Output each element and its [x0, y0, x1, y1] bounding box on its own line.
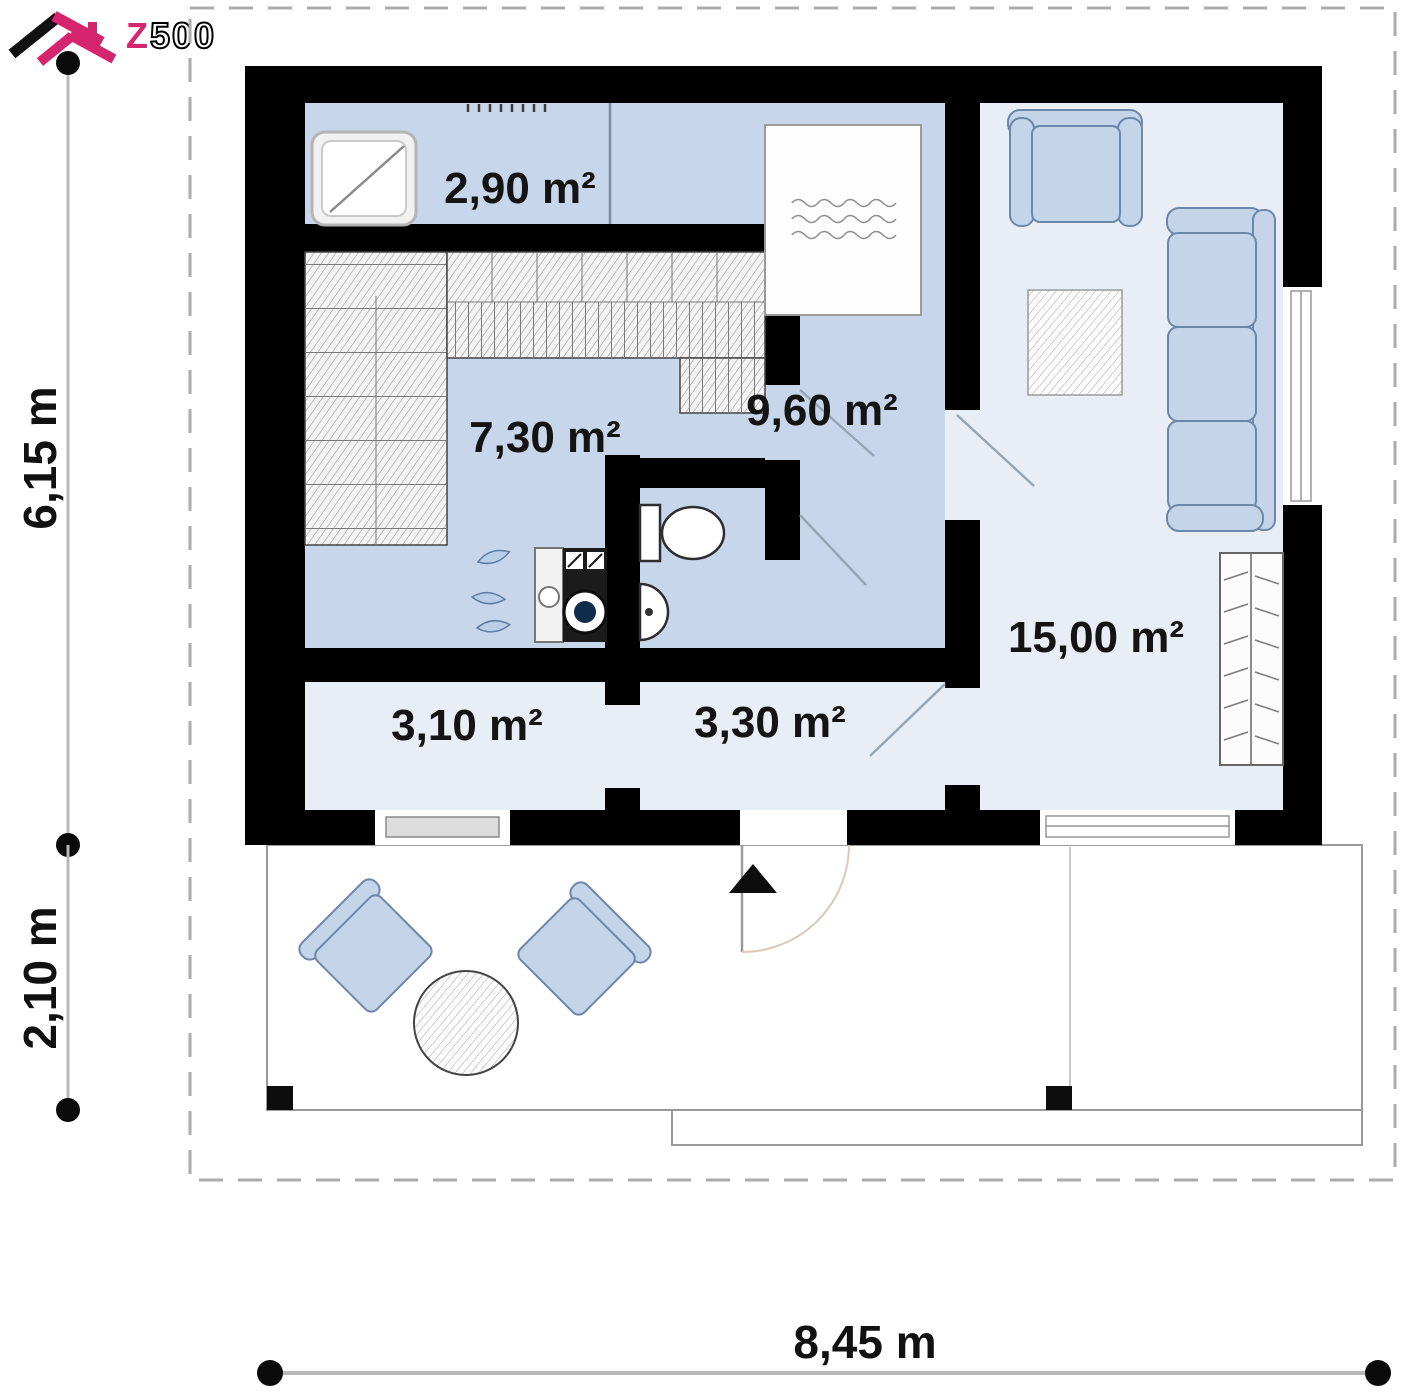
living-door-gap — [945, 410, 980, 520]
terrace-step — [672, 1110, 1362, 1145]
floor-plan-page: Z 500 — [0, 0, 1403, 1396]
sink-icon — [539, 587, 559, 607]
dimension-width: 8,45 m — [257, 1316, 1391, 1386]
terrace-deck — [267, 845, 1362, 1110]
shower-tray-icon — [312, 132, 416, 225]
logo-text-rest: 500 — [150, 15, 216, 56]
dimension-terrace: 2,10 m — [14, 845, 80, 1122]
sofa-icon — [1167, 208, 1275, 531]
dimension-label-width: 8,45 m — [793, 1316, 936, 1368]
dimension-height: 6,15 m — [14, 51, 80, 857]
terrace-table-icon — [414, 971, 518, 1075]
hall-door-gap — [605, 705, 640, 788]
entrance-door-gap — [740, 810, 847, 845]
dimension-label-terrace: 2,10 m — [14, 906, 66, 1049]
area-label-entry: 3,30 m² — [694, 698, 846, 747]
chimney-icon — [88, 22, 97, 37]
building: 2,90 m² 7,30 m² 9,60 m² 15,00 m² 3,10 m²… — [245, 66, 1322, 845]
bed-icon — [765, 125, 921, 315]
dimension-label-height: 6,15 m — [14, 386, 66, 529]
area-label-bedroom: 9,60 m² — [746, 386, 898, 435]
logo-text-accent: Z — [126, 15, 148, 56]
window-hall-icon — [386, 817, 499, 837]
area-label-sauna: 7,30 m² — [469, 413, 621, 462]
area-label-shower: 2,90 m² — [444, 164, 596, 213]
area-label-hall: 3,10 m² — [391, 701, 543, 750]
z500-logo: Z 500 — [12, 15, 216, 62]
terrace-post — [267, 1086, 293, 1110]
rug-icon — [1028, 290, 1122, 395]
terrace-post — [1046, 1086, 1072, 1110]
kitchenette — [472, 547, 607, 642]
terrace — [267, 845, 1362, 1145]
armchair-icon — [1008, 110, 1142, 226]
toilet-icon — [640, 505, 724, 561]
washing-machine-icon — [564, 591, 606, 633]
area-label-living: 15,00 m² — [1008, 613, 1184, 662]
wc-opening — [765, 560, 800, 648]
entry-living-door-gap — [945, 688, 980, 785]
wardrobe-icon — [1220, 553, 1283, 765]
